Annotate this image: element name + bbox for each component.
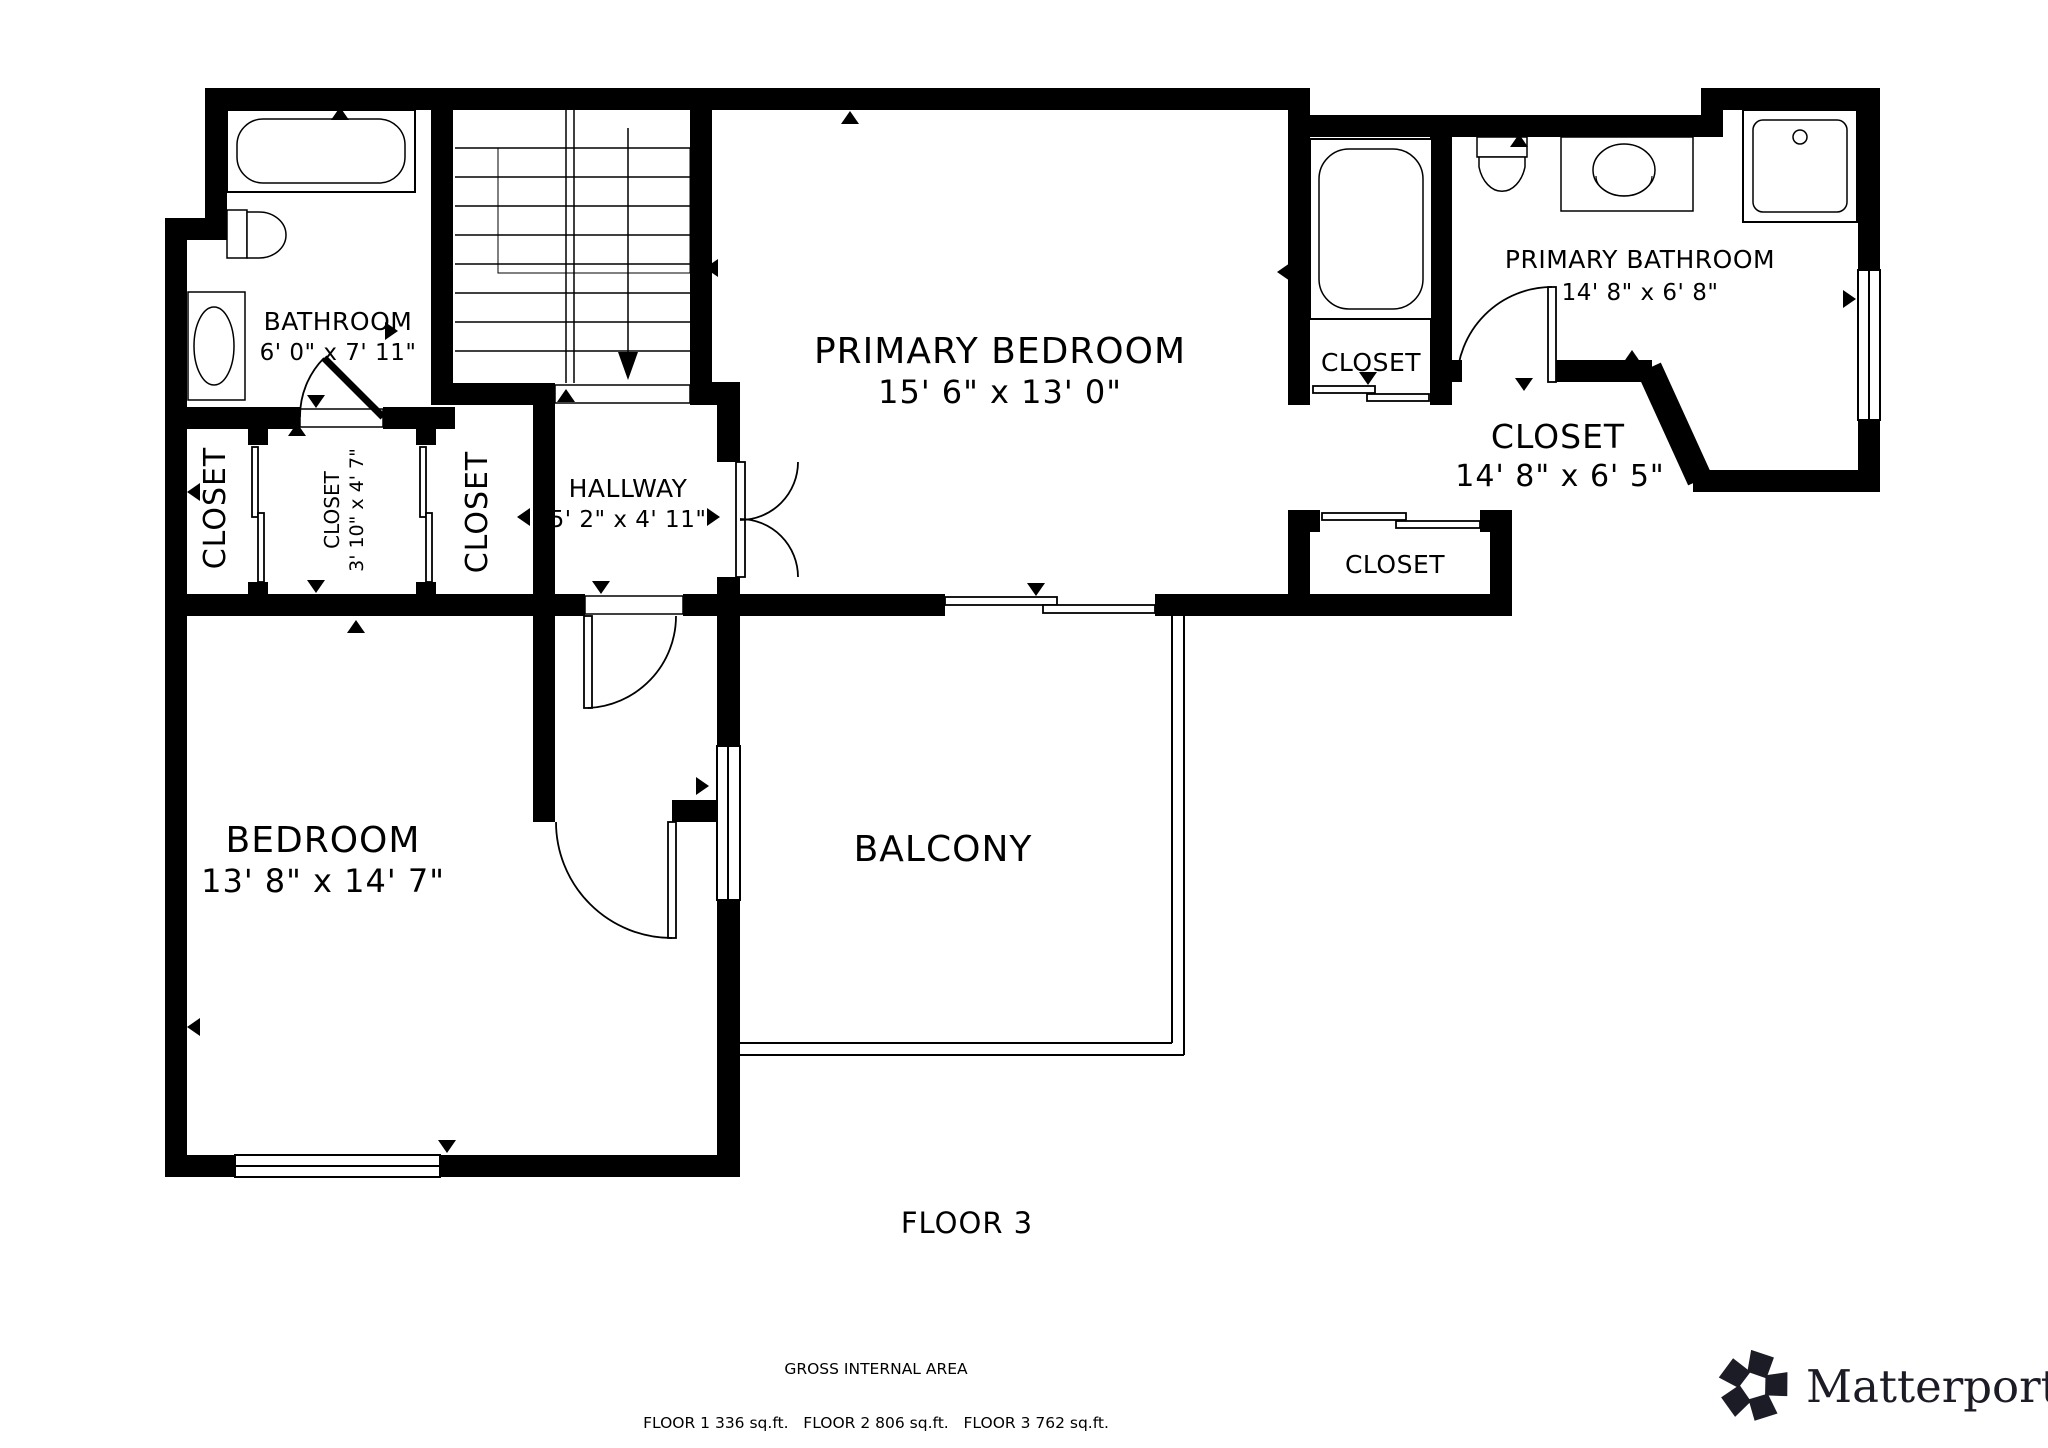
area-summary-title: GROSS INTERNAL AREA (276, 1360, 1476, 1378)
room-label-balcony: BALCONY (854, 829, 1033, 870)
slider-panel (1313, 386, 1375, 393)
wall (165, 1155, 235, 1177)
door-leaf (324, 358, 383, 417)
wall (431, 110, 453, 405)
shower-drain (1793, 130, 1807, 144)
room-label-closet-primary-bath: CLOSET (1321, 348, 1421, 377)
wall (383, 407, 455, 429)
matterport-wordmark: Matterport® (1806, 1360, 2048, 1413)
wall (1490, 510, 1512, 616)
opening-threshold (300, 409, 383, 427)
wall (1430, 383, 1452, 405)
room-dims-walkin-closet: 14' 8" x 6' 5" (1455, 459, 1664, 494)
arrow-down-icon (1027, 583, 1045, 596)
matterport-pinwheel-icon (1716, 1348, 1792, 1424)
room-dims-bathroom: 6' 0" x 7' 11" (260, 340, 417, 366)
room-label-bathroom: BATHROOM (264, 307, 413, 336)
wall (717, 400, 740, 462)
wall (717, 900, 740, 1177)
arrow-left-icon (517, 508, 530, 526)
slider-panel (945, 597, 1057, 605)
wall (1701, 88, 1880, 110)
wall (1430, 137, 1452, 383)
arrow-down-icon (307, 395, 325, 408)
toilet-bowl (247, 212, 286, 258)
room-label-closet-right: CLOSET (460, 451, 495, 574)
wall (1288, 510, 1320, 532)
room-label-closet-middle: CLOSET (320, 470, 344, 548)
wall (248, 429, 268, 445)
toilet-tank (227, 210, 247, 258)
slider-panel (258, 513, 264, 582)
wall (690, 110, 712, 393)
door-leaf (584, 616, 592, 708)
wall (683, 594, 945, 616)
staircase (455, 110, 690, 383)
wall (205, 88, 227, 228)
area-summary-floors: FLOOR 1 336 sq.ft. FLOOR 2 806 sq.ft. FL… (276, 1414, 1476, 1432)
floor-label: FLOOR 3 (901, 1206, 1033, 1240)
room-dims-closet-middle: 3' 10" x 4' 7" (346, 448, 368, 572)
door-leaf (668, 822, 676, 938)
wall (165, 407, 300, 429)
arrow-down-icon (1515, 378, 1533, 391)
door-leaf (1548, 287, 1556, 382)
room-label-walkin-closet: CLOSET (1491, 417, 1625, 456)
slider-panel (426, 513, 432, 582)
arrow-right-icon (1843, 290, 1856, 308)
wall (1858, 88, 1880, 270)
arrow-up-icon (841, 111, 859, 124)
slider-panel (420, 447, 426, 517)
room-label-primary-bathroom: PRIMARY BATHROOM (1505, 245, 1775, 274)
room-label-closet-left: CLOSET (198, 447, 233, 570)
arrow-right-icon (696, 777, 709, 795)
arrow-down-icon (307, 580, 325, 593)
room-label-hallway: HALLWAY (569, 474, 688, 503)
wall (1693, 470, 1880, 492)
slider-panel (1367, 394, 1429, 401)
wall (1155, 594, 1512, 616)
opening-threshold (555, 385, 690, 403)
arrow-left-icon (187, 1018, 200, 1036)
room-dims-hallway: 5' 2" x 4' 11" (550, 507, 707, 533)
room-label-closet-center: CLOSET (1345, 550, 1445, 579)
wall (1288, 115, 1723, 137)
area-summary: GROSS INTERNAL AREA FLOOR 1 336 sq.ft. F… (276, 1324, 1476, 1448)
floor-plan-page: BATHROOM 6' 0" x 7' 11" PRIMARY BEDROOM … (0, 0, 2048, 1448)
wall (165, 594, 585, 616)
wall (717, 616, 740, 746)
arrow-down-icon (438, 1140, 456, 1153)
arrow-left-icon (1277, 263, 1290, 281)
wall (433, 383, 555, 405)
arrow-up-icon (347, 620, 365, 633)
wall (533, 616, 555, 800)
wall (533, 800, 555, 822)
wall (416, 429, 436, 445)
opening-threshold (585, 596, 683, 614)
arrow-down-icon (592, 581, 610, 594)
bathtub-basin (237, 119, 405, 183)
door-arc (588, 616, 676, 708)
room-dims-primary-bathroom: 14' 8" x 6' 8" (1562, 280, 1719, 306)
door-arc (740, 462, 798, 520)
room-label-primary-bedroom: PRIMARY BEDROOM (814, 331, 1186, 372)
wall (1288, 110, 1310, 405)
door-arc (300, 358, 324, 417)
wall (1552, 360, 1652, 382)
slider-panel (1396, 521, 1480, 528)
door-arc (740, 519, 798, 577)
room-dims-primary-bedroom: 15' 6" x 13' 0" (878, 373, 1122, 411)
floor-plan-drawing: BATHROOM 6' 0" x 7' 11" PRIMARY BEDROOM … (0, 0, 2048, 1448)
wall (440, 1155, 740, 1177)
stair-direction-arrowhead (618, 352, 638, 380)
room-label-bedroom: BEDROOM (226, 820, 421, 861)
sink-basin (194, 307, 234, 385)
arrow-right-icon (707, 508, 720, 526)
wall (165, 218, 187, 1177)
matterport-logo: Matterport® (1716, 1348, 2048, 1424)
slider-panel (1322, 513, 1406, 520)
stair-void-outline (498, 148, 690, 273)
slider-panel (1043, 605, 1155, 613)
bathtub-basin (1319, 149, 1423, 309)
wall (205, 88, 1310, 110)
arrow-up-icon (1623, 350, 1641, 363)
room-dims-bedroom: 13' 8" x 14' 7" (201, 862, 445, 900)
toilet-bowl (1479, 157, 1525, 191)
door-arc (1457, 287, 1552, 382)
slider-panel (252, 447, 258, 517)
door-arc (556, 822, 672, 938)
